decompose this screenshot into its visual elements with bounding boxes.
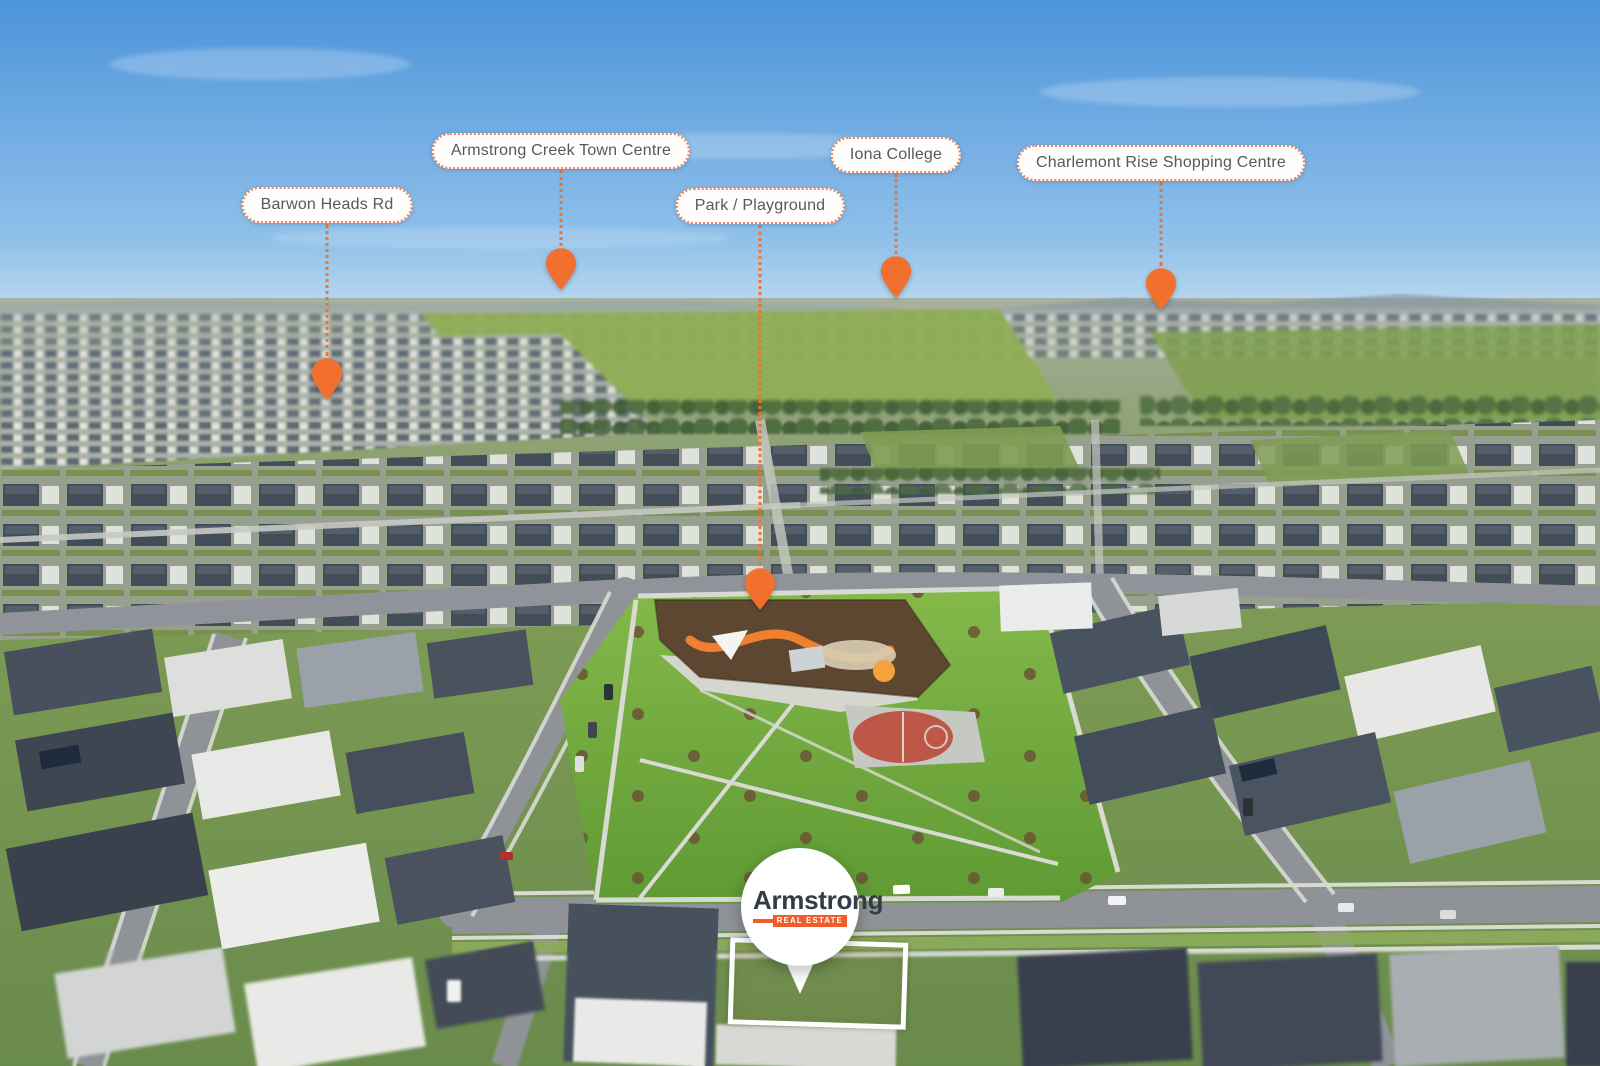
callout-park-playground: Park / Playground (676, 188, 845, 224)
callout-label: Iona College (850, 146, 942, 163)
location-pin-icon (310, 356, 344, 402)
callout-connector-armstrong-creek (560, 170, 563, 246)
brand-balloon: Armstrong REAL ESTATE (741, 848, 859, 966)
basketball-court (845, 705, 985, 768)
callout-connector-iona-college (895, 174, 898, 254)
callout-label: Charlemont Rise Shopping Centre (1036, 154, 1286, 171)
callout-label: Park / Playground (695, 197, 826, 214)
callout-connector-charlemont-rise (1160, 182, 1163, 266)
location-pin-icon (743, 566, 777, 612)
callout-connector-park-playground (759, 225, 762, 566)
logo-name: Armstrong (753, 887, 847, 913)
aerial-property-photo: Armstrong Creek Town Centre Barwon Heads… (0, 0, 1600, 1066)
callout-charlemont-rise-shopping-centre: Charlemont Rise Shopping Centre (1017, 145, 1305, 181)
logo-tagline: REAL ESTATE (773, 915, 847, 928)
location-pin-icon (544, 246, 578, 292)
callout-barwon-heads-rd: Barwon Heads Rd (242, 187, 413, 223)
callout-label: Barwon Heads Rd (261, 196, 394, 213)
callout-iona-college: Iona College (831, 137, 961, 173)
callout-connector-barwon-heads (326, 224, 329, 356)
logo-sub: REAL ESTATE (753, 915, 847, 928)
sky (0, 0, 1600, 332)
location-pin-icon (879, 254, 913, 300)
callout-armstrong-creek-town-centre: Armstrong Creek Town Centre (432, 133, 690, 169)
callout-label: Armstrong Creek Town Centre (451, 142, 671, 159)
armstrong-logo: Armstrong REAL ESTATE (753, 887, 847, 928)
logo-underline (753, 919, 773, 923)
brand-marker: Armstrong REAL ESTATE (741, 848, 859, 994)
location-pin-icon (1144, 266, 1178, 312)
